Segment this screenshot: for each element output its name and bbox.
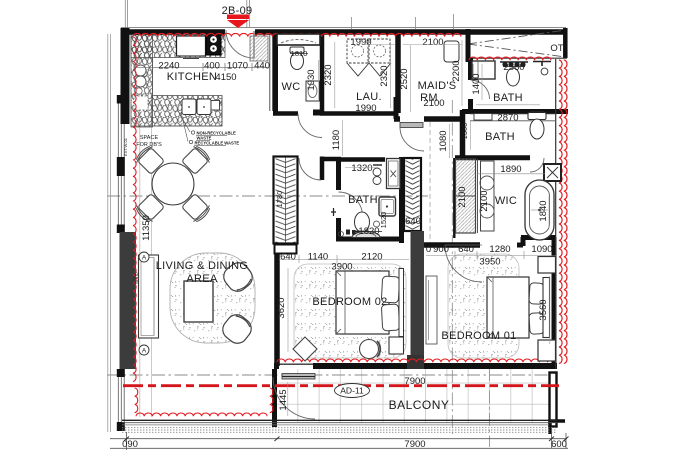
svg-text:WC: WC bbox=[282, 81, 301, 93]
svg-text:1140: 1140 bbox=[308, 252, 328, 263]
svg-text:11350: 11350 bbox=[141, 215, 152, 241]
svg-text:SPACE: SPACE bbox=[140, 135, 159, 141]
svg-text:1520: 1520 bbox=[379, 212, 388, 229]
svg-text:AD-11: AD-11 bbox=[340, 386, 364, 396]
svg-text:1840: 1840 bbox=[538, 200, 549, 221]
svg-text:2B-09: 2B-09 bbox=[222, 5, 253, 17]
svg-text:BATH: BATH bbox=[493, 92, 523, 104]
svg-text:BALCONY: BALCONY bbox=[389, 398, 450, 412]
svg-text:OT: OT bbox=[550, 43, 563, 54]
svg-text:BATH: BATH bbox=[348, 194, 378, 206]
svg-text:2240: 2240 bbox=[158, 61, 179, 72]
svg-text:3560: 3560 bbox=[538, 299, 549, 320]
svg-text:3620: 3620 bbox=[276, 297, 287, 318]
svg-text:1070: 1070 bbox=[227, 61, 248, 72]
svg-text:1445: 1445 bbox=[278, 389, 289, 410]
svg-text:3950: 3950 bbox=[479, 257, 500, 268]
svg-text:1400: 1400 bbox=[471, 73, 482, 94]
svg-text:BEDROOM 01: BEDROOM 01 bbox=[441, 330, 516, 342]
svg-text:1300: 1300 bbox=[460, 123, 469, 140]
svg-text:LAU.: LAU. bbox=[356, 91, 382, 103]
svg-text:6000: 6000 bbox=[135, 272, 141, 283]
svg-text:090: 090 bbox=[122, 439, 138, 450]
svg-text:2200: 2200 bbox=[451, 60, 462, 81]
svg-text:2560: 2560 bbox=[503, 62, 524, 73]
svg-text:FOR DB'S: FOR DB'S bbox=[136, 142, 162, 148]
svg-text:7900: 7900 bbox=[404, 439, 425, 450]
svg-text:1280: 1280 bbox=[489, 244, 510, 255]
svg-text:EXT.W-01: EXT.W-01 bbox=[123, 137, 128, 156]
svg-text:640: 640 bbox=[280, 252, 296, 263]
svg-text:4150: 4150 bbox=[215, 72, 236, 83]
svg-text:LIVING & DINING: LIVING & DINING bbox=[156, 260, 249, 272]
svg-text:1080: 1080 bbox=[438, 130, 449, 151]
svg-text:AREA: AREA bbox=[186, 273, 218, 285]
svg-text:640: 640 bbox=[458, 244, 474, 255]
svg-text:7900: 7900 bbox=[404, 376, 425, 387]
svg-text:2100: 2100 bbox=[422, 37, 443, 48]
svg-text:BEDROOM 02: BEDROOM 02 bbox=[312, 296, 387, 308]
svg-text:2520: 2520 bbox=[399, 68, 410, 89]
svg-text:1990: 1990 bbox=[355, 103, 376, 114]
svg-text:2120: 2120 bbox=[361, 252, 382, 263]
svg-text:WIC: WIC bbox=[495, 195, 517, 207]
svg-text:1890: 1890 bbox=[500, 164, 521, 175]
svg-text:2100: 2100 bbox=[457, 186, 468, 207]
svg-text:1180: 1180 bbox=[331, 130, 342, 150]
svg-text:RECYCLABLE WASTE: RECYCLABLE WASTE bbox=[195, 141, 240, 146]
svg-text:3900: 3900 bbox=[331, 262, 352, 273]
svg-text:1930: 1930 bbox=[306, 69, 317, 90]
svg-text:440: 440 bbox=[254, 61, 270, 72]
svg-text:KITCHEN: KITCHEN bbox=[167, 71, 217, 83]
svg-text:1090: 1090 bbox=[531, 244, 552, 255]
svg-text:BATH: BATH bbox=[485, 131, 515, 143]
svg-text:1320: 1320 bbox=[351, 163, 372, 174]
svg-text:900: 900 bbox=[433, 244, 449, 255]
svg-text:600: 600 bbox=[551, 439, 567, 450]
svg-text:400: 400 bbox=[204, 61, 220, 72]
svg-text:1990: 1990 bbox=[350, 37, 371, 48]
svg-text:A: A bbox=[142, 348, 147, 355]
svg-text:640: 640 bbox=[405, 216, 421, 227]
svg-text:2870: 2870 bbox=[497, 113, 518, 124]
svg-text:A: A bbox=[142, 255, 147, 262]
svg-text:2320: 2320 bbox=[323, 64, 334, 85]
svg-text:2100: 2100 bbox=[479, 190, 490, 211]
svg-text:1780: 1780 bbox=[275, 191, 284, 208]
svg-text:2100: 2100 bbox=[423, 98, 444, 109]
svg-text:2320: 2320 bbox=[379, 65, 390, 86]
svg-text:0: 0 bbox=[426, 244, 431, 255]
